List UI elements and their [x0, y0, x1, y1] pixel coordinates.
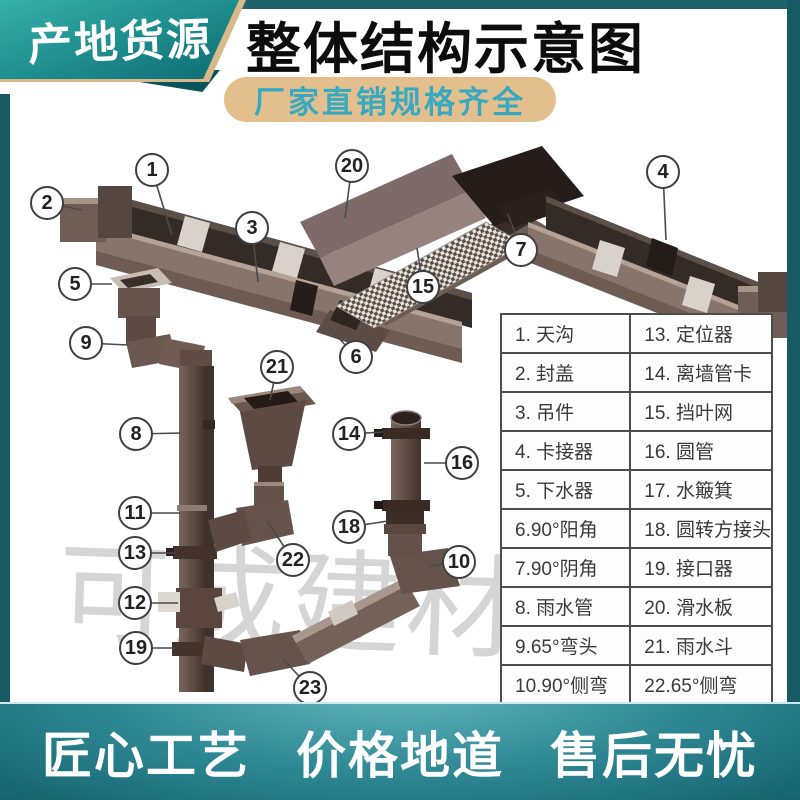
- legend-cell: 9.65°弯头: [501, 626, 630, 665]
- pipe-clamp: [173, 546, 217, 559]
- bottom-run: [201, 548, 460, 676]
- leader-line-4: [663, 172, 666, 240]
- legend-cell: 2. 封盖: [501, 353, 630, 392]
- legend-row: 6.90°阳角18. 圆转方接头: [501, 509, 772, 548]
- footer-banner: 匠心工艺 价格地道 售后无忧: [0, 702, 800, 800]
- legend-cell: 21. 雨水斗: [630, 626, 772, 665]
- connector-block: [176, 588, 222, 628]
- legend-cell: 1. 天沟: [501, 314, 630, 353]
- legend-row: 9.65°弯头21. 雨水斗: [501, 626, 772, 665]
- leader-line-18: [349, 521, 388, 527]
- top-border: [240, 0, 800, 9]
- legend-row: 10.90°侧弯22.65°侧弯: [501, 665, 772, 704]
- leader-line-8: [136, 433, 181, 434]
- legend-row: 3. 吊件15. 挡叶网: [501, 392, 772, 431]
- square-duct: [292, 578, 420, 664]
- legend-row: 1. 天沟13. 定位器: [501, 314, 772, 353]
- legend-cell: 16. 圆管: [630, 431, 772, 470]
- subtitle-label: 厂家直销规格齐全: [254, 77, 526, 122]
- legend-row: 4. 卡接器16. 圆管: [501, 431, 772, 470]
- footer-item-service: 售后无忧: [550, 716, 758, 788]
- legend-cell: 17. 水簸箕: [630, 470, 772, 509]
- page: 可成建材: [0, 0, 800, 800]
- footer-item-craft: 匠心工艺: [42, 716, 250, 788]
- wall-clamp: [382, 428, 430, 439]
- legend-cell: 15. 挡叶网: [630, 392, 772, 431]
- outlet-body: [118, 288, 160, 318]
- legend-row: 5. 下水器17. 水簸箕: [501, 470, 772, 509]
- left-downpipe: [110, 268, 222, 692]
- legend-cell: 14. 离墙管卡: [630, 353, 772, 392]
- legend-cell: 18. 圆转方接头: [630, 509, 772, 548]
- subtitle-pill: 厂家直销规格齐全: [224, 77, 556, 122]
- legend-cell: 6.90°阳角: [501, 509, 630, 548]
- legend-cell: 19. 接口器: [630, 548, 772, 587]
- legend-cell: 22.65°侧弯: [630, 665, 772, 704]
- footer-item-price: 价格地道: [296, 716, 504, 788]
- legend-cell: 13. 定位器: [630, 314, 772, 353]
- legend-cell: 5. 下水器: [501, 470, 630, 509]
- right-border: [787, 0, 800, 703]
- origin-badge-label: 产地货源: [26, 2, 212, 72]
- origin-badge: 产地货源: [0, 0, 239, 79]
- wall-clamp: [382, 500, 430, 511]
- leader-line-9: [86, 343, 128, 345]
- legend-cell: 20. 滑水板: [630, 587, 772, 626]
- legend-row: 2. 封盖14. 离墙管卡: [501, 353, 772, 392]
- legend-cell: 3. 吊件: [501, 392, 630, 431]
- legend-row: 8. 雨水管20. 滑水板: [501, 587, 772, 626]
- rain-hopper: [208, 386, 316, 552]
- legend-row: 7.90°阴角19. 接口器: [501, 548, 772, 587]
- page-title: 整体结构示意图: [246, 4, 645, 84]
- legend-cell: 8. 雨水管: [501, 587, 630, 626]
- round-square-adapter: [386, 510, 424, 524]
- legend-cell: 10.90°侧弯: [501, 665, 630, 704]
- legend-cell: 4. 卡接器: [501, 431, 630, 470]
- legend-cell: 7.90°阴角: [501, 548, 630, 587]
- left-border: [0, 94, 10, 703]
- legend-table: 1. 天沟13. 定位器 2. 封盖14. 离墙管卡 3. 吊件15. 挡叶网 …: [500, 313, 773, 705]
